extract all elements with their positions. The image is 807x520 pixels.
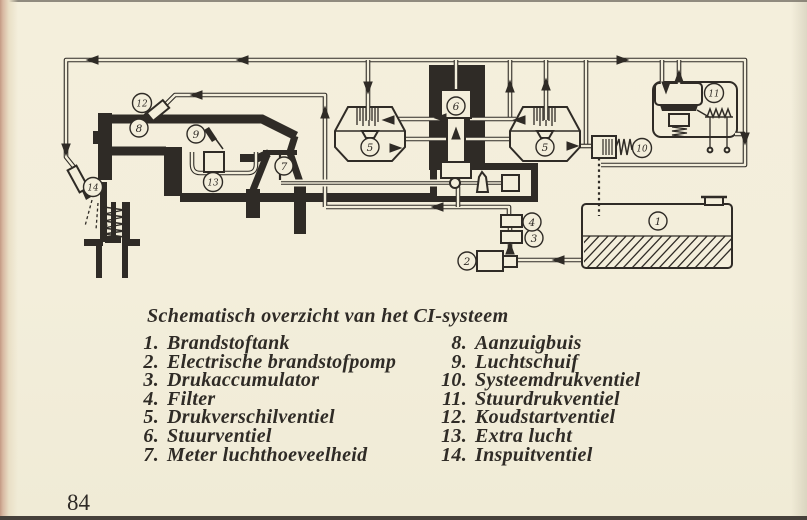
svg-text:11: 11	[708, 89, 719, 99]
callout-11: 11	[705, 84, 724, 103]
electric-terminal	[708, 148, 713, 153]
legend-item: 3.Drukaccumulator	[142, 371, 396, 390]
svg-text:6: 6	[453, 101, 460, 113]
valve-spring	[616, 139, 632, 155]
scan-bottom-edge	[0, 516, 807, 520]
svg-text:1: 1	[655, 216, 662, 228]
svg-text:8: 8	[136, 123, 143, 135]
callout-5-right: 5	[536, 138, 554, 156]
legend-item: 7.Meter luchthoeveelheid	[142, 446, 396, 465]
callout-1: 1	[649, 212, 667, 230]
callout-13: 13	[204, 173, 223, 192]
callout-7: 7	[275, 157, 293, 175]
callout-5-left: 5	[361, 138, 379, 156]
legend-column-left: 1.Brandstoftank 2.Electrische brandstofp…	[142, 334, 396, 464]
legend-item: 13.Extra lucht	[434, 427, 640, 446]
svg-text:14: 14	[87, 183, 98, 193]
callout-4: 4	[523, 213, 541, 231]
extra-air-valve	[204, 152, 224, 172]
legend-item: 6.Stuurventiel	[142, 427, 396, 446]
intake-valve-head	[105, 236, 121, 243]
book-gutter-shadow	[0, 0, 18, 520]
callout-10: 10	[633, 139, 652, 158]
lever-pivot	[450, 178, 460, 188]
svg-text:7: 7	[281, 161, 288, 173]
electric-terminal	[725, 148, 730, 153]
svg-text:3: 3	[531, 233, 538, 245]
legend-item: 10.Systeemdrukventiel	[434, 371, 640, 390]
legend-item: 8.Aanzuigbuis	[434, 334, 640, 353]
book-page: 1 2 3 4 5 5 6 7 8 9 10 11 12 13 14 Schem…	[0, 0, 807, 520]
callout-14: 14	[84, 178, 103, 197]
legend-item: 14.Inspuitventiel	[434, 446, 640, 465]
legend-item: 1.Brandstoftank	[142, 334, 396, 353]
callout-2: 2	[458, 252, 476, 270]
control-plunger	[447, 118, 465, 164]
system-pressure-valve	[592, 136, 632, 158]
fuel-tank	[560, 197, 745, 268]
figure-caption: Schematisch overzicht van het CI-systeem	[147, 305, 509, 328]
callout-9: 9	[187, 125, 205, 143]
ci-system-diagram: 1 2 3 4 5 5 6 7 8 9 10 11 12 13 14	[0, 0, 807, 300]
svg-text:10: 10	[636, 144, 648, 154]
diaphragm-plate	[660, 105, 698, 111]
svg-text:2: 2	[463, 256, 471, 268]
legend-column-right: 8.Aanzuigbuis 9.Luchtschuif 10.Systeemdr…	[434, 334, 640, 464]
callout-3: 3	[525, 229, 543, 247]
page-number: 84	[67, 490, 90, 516]
svg-text:5: 5	[542, 142, 549, 154]
control-pressure-valve	[653, 60, 745, 152]
sensor-plate	[263, 150, 297, 155]
callout-6: 6	[447, 97, 465, 115]
fuel-accumulator	[501, 231, 522, 243]
svg-text:9: 9	[193, 129, 200, 141]
svg-text:5: 5	[367, 142, 374, 154]
svg-text:13: 13	[207, 178, 219, 188]
fuel-filter	[501, 215, 522, 227]
svg-text:4: 4	[528, 217, 536, 229]
air-slide	[204, 127, 223, 149]
callout-8: 8	[130, 119, 148, 137]
callout-12: 12	[133, 94, 152, 113]
svg-text:12: 12	[136, 99, 148, 109]
